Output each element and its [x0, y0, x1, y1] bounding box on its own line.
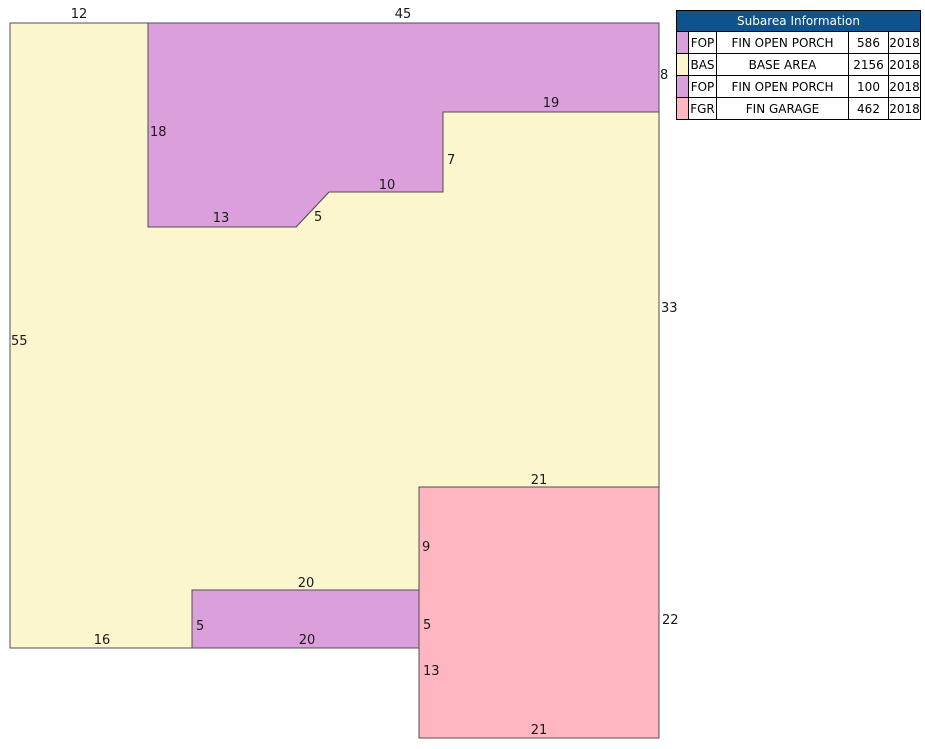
property-sketch-page: 124581918710513335521920225516201321 Sub… [0, 0, 925, 749]
subarea-year: 2018 [889, 32, 921, 54]
dimension-label: 21 [531, 473, 548, 488]
subarea-code: FOP [689, 76, 717, 98]
shape-fin-garage [419, 487, 659, 738]
dimension-label: 12 [71, 7, 88, 22]
dimension-label: 55 [11, 334, 28, 349]
subarea-year: 2018 [889, 98, 921, 120]
dimension-label: 22 [662, 613, 679, 628]
sketch-shapes [10, 23, 659, 738]
subarea-information-table: Subarea Information FOPFIN OPEN PORCH586… [676, 10, 921, 120]
dimension-label: 18 [150, 125, 167, 140]
subarea-color-swatch [677, 76, 689, 98]
dimension-label: 10 [379, 178, 396, 193]
subarea-row-fgr-3: FGRFIN GARAGE4622018 [677, 98, 921, 120]
dimension-label: 45 [395, 7, 412, 22]
subarea-color-swatch [677, 98, 689, 120]
dimension-label: 13 [423, 664, 440, 679]
dimension-label: 13 [213, 211, 230, 226]
subarea-table-title: Subarea Information [677, 11, 921, 32]
subarea-row-fop-2: FOPFIN OPEN PORCH1002018 [677, 76, 921, 98]
dimension-label: 20 [299, 633, 316, 648]
dimension-label: 7 [447, 153, 455, 168]
subarea-description: FIN GARAGE [717, 98, 849, 120]
subarea-description: FIN OPEN PORCH [717, 32, 849, 54]
subarea-sqft: 586 [849, 32, 889, 54]
subarea-description: FIN OPEN PORCH [717, 76, 849, 98]
dimension-label: 33 [661, 301, 678, 316]
subarea-description: BASE AREA [717, 54, 849, 76]
subarea-row-bas-1: BASBASE AREA21562018 [677, 54, 921, 76]
dimension-label: 9 [422, 540, 430, 555]
subarea-year: 2018 [889, 54, 921, 76]
subarea-table-header-row: Subarea Information [677, 11, 921, 32]
subarea-color-swatch [677, 32, 689, 54]
subarea-sqft: 100 [849, 76, 889, 98]
dimension-label: 16 [94, 633, 111, 648]
subarea-sqft: 2156 [849, 54, 889, 76]
dimension-label: 19 [543, 96, 560, 111]
subarea-color-swatch [677, 54, 689, 76]
subarea-code: BAS [689, 54, 717, 76]
subarea-year: 2018 [889, 76, 921, 98]
subarea-code: FGR [689, 98, 717, 120]
dimension-label: 8 [660, 68, 668, 83]
subarea-sqft: 462 [849, 98, 889, 120]
subarea-row-fop-0: FOPFIN OPEN PORCH5862018 [677, 32, 921, 54]
subarea-table-body: FOPFIN OPEN PORCH5862018BASBASE AREA2156… [677, 32, 921, 120]
dimension-label: 5 [314, 210, 322, 225]
dimension-label: 5 [196, 619, 204, 634]
dimension-label: 21 [531, 723, 548, 738]
dimension-label: 5 [423, 618, 431, 633]
subarea-code: FOP [689, 32, 717, 54]
dimension-label: 20 [298, 576, 315, 591]
